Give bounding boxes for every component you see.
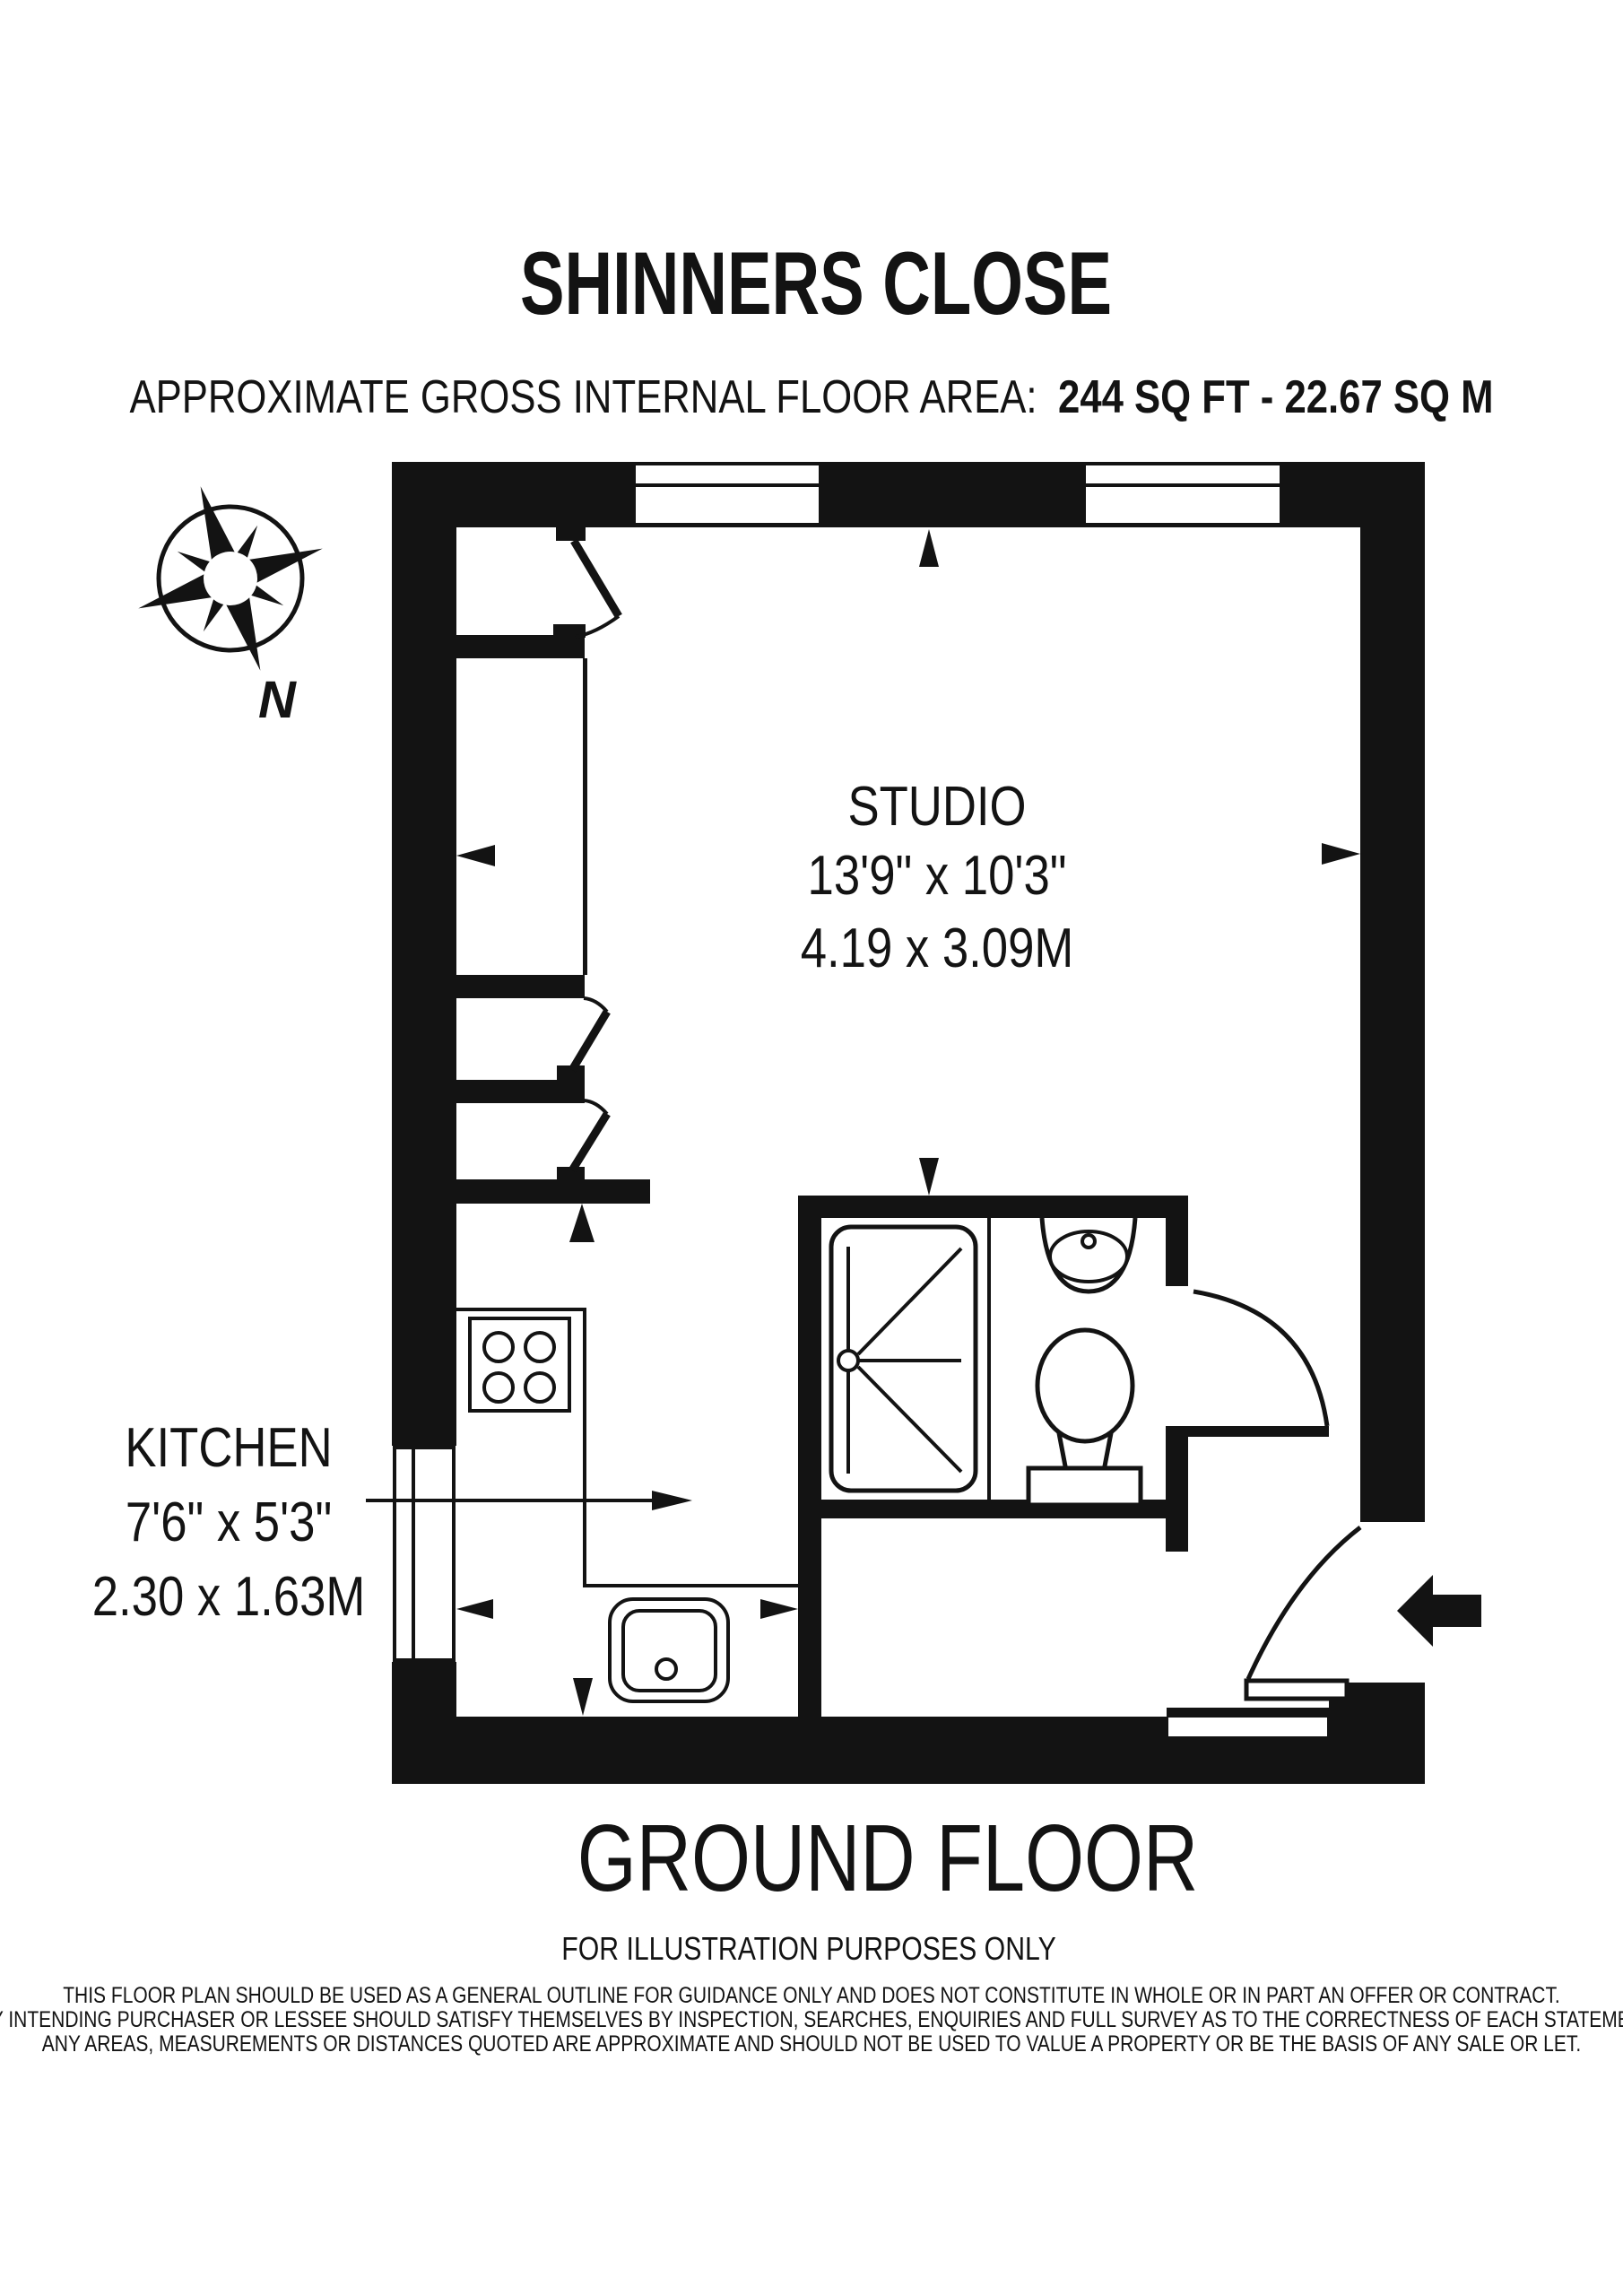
bathroom-partition-line — [987, 1218, 991, 1500]
measure-arrow-down-icon — [919, 1158, 939, 1196]
closet-front-line — [583, 658, 587, 975]
room-size-metric: 4.19 x 3.09M — [801, 918, 1074, 979]
floor-plan-canvas: SHINNERS CLOSE APPROXIMATE GROSS INTERNA… — [0, 0, 1623, 2296]
entry-threshold-gap — [1168, 1718, 1327, 1736]
compass-rose-icon: N — [108, 457, 352, 729]
room-name: STUDIO — [847, 776, 1026, 838]
bathroom-doorjamb-upper — [1166, 1218, 1188, 1286]
page-title: SHINNERS CLOSE — [520, 234, 1112, 334]
entry-door-icon — [1246, 1527, 1360, 1699]
wall-right — [1360, 462, 1425, 1522]
toilet-icon — [1028, 1330, 1141, 1505]
measurement-arrows — [456, 529, 1360, 1716]
disclaimer-line: THIS FLOOR PLAN SHOULD BE USED AS A GENE… — [63, 1982, 1560, 2007]
wall-left-upper — [392, 462, 456, 1446]
room-size-imperial: 13'9" x 10'3" — [808, 845, 1067, 907]
closet-stub-a — [456, 635, 585, 658]
disclaimer-line: ANY INTENDING PURCHASER OR LESSEE SHOULD… — [0, 2006, 1623, 2031]
disclaimer-line: ANY AREAS, MEASUREMENTS OR DISTANCES QUO… — [42, 2031, 1581, 2056]
door-icon — [557, 998, 607, 1082]
kitchen-divider-wall — [456, 1179, 650, 1204]
floor-label: GROUND FLOOR — [577, 1805, 1198, 1911]
measure-arrow-up-icon — [919, 529, 939, 567]
compass-north-label: N — [258, 671, 297, 729]
measure-arrow-down-icon — [573, 1678, 593, 1716]
closet-stub-b — [456, 975, 585, 998]
room-name: KITCHEN — [125, 1417, 332, 1479]
bathroom-wall-left — [798, 1196, 821, 1717]
compass-star — [108, 457, 352, 700]
entry-arrow-icon — [1397, 1575, 1481, 1647]
measure-arrow-right-icon — [760, 1599, 798, 1619]
basin-icon — [1042, 1218, 1135, 1291]
bathroom-fixtures — [831, 1218, 1141, 1505]
window-icon — [634, 464, 820, 525]
room-size-imperial: 7'6" x 5'3" — [126, 1492, 332, 1553]
room-size-metric: 2.30 x 1.63M — [92, 1566, 366, 1628]
floor-area-value: 244 SQ FT - 22.67 SQ M — [1058, 372, 1493, 423]
measure-arrow-right-icon — [1322, 843, 1360, 865]
shower-icon — [831, 1227, 976, 1491]
bathroom-wall-top — [798, 1196, 1188, 1218]
studio-label: STUDIO 13'9" x 10'3" 4.19 x 3.09M — [801, 776, 1074, 979]
kitchen-fixtures — [456, 1309, 798, 1701]
entry-threshold-bar — [1167, 1708, 1329, 1718]
hob-icon — [470, 1318, 569, 1411]
window-icon — [1084, 464, 1281, 525]
sink-icon — [610, 1599, 728, 1701]
leader-arrow-icon — [652, 1491, 692, 1510]
kitchen-label: KITCHEN 7'6" x 5'3" 2.30 x 1.63M — [92, 1417, 366, 1628]
window-icon — [395, 1448, 454, 1660]
measure-arrow-left-icon — [456, 1599, 493, 1619]
bathroom-wall-right-lower — [1166, 1426, 1188, 1552]
floor-area-label: APPROXIMATE GROSS INTERNAL FLOOR AREA: — [129, 372, 1037, 423]
door-icon — [557, 1100, 607, 1181]
outer-walls — [392, 462, 1425, 1784]
footer: GROUND FLOOR FOR ILLUSTRATION PURPOSES O… — [0, 1805, 1623, 2056]
doors — [553, 527, 1360, 1699]
door-icon — [553, 527, 619, 638]
measure-arrow-left-icon — [456, 845, 495, 866]
bathroom-door-icon — [1177, 1291, 1329, 1437]
closet-stub-c — [456, 1080, 585, 1103]
header: SHINNERS CLOSE APPROXIMATE GROSS INTERNA… — [129, 234, 1493, 423]
measure-arrow-up-icon — [569, 1204, 595, 1242]
floor-area-line: APPROXIMATE GROSS INTERNAL FLOOR AREA:24… — [129, 372, 1493, 423]
illustration-note: FOR ILLUSTRATION PURPOSES ONLY — [561, 1932, 1056, 1968]
